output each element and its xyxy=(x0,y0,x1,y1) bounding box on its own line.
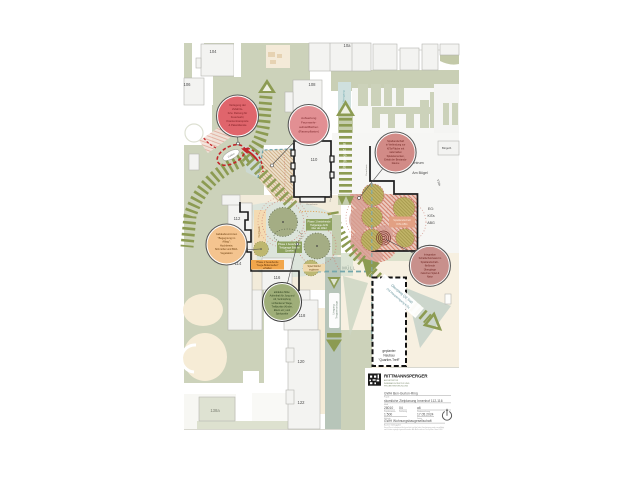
svg-text:in Verbindung zur: in Verbindung zur xyxy=(386,144,406,147)
svg-text:Natur: Natur xyxy=(427,276,433,279)
svg-text:räumliche Zielplanung Innenhof: räumliche Zielplanung Innenhof 112-116 xyxy=(384,399,443,403)
svg-text:116: 116 xyxy=(274,275,281,280)
svg-text:Treppenanlage: Treppenanlage xyxy=(335,300,339,318)
svg-text:Bauherr / Auftraggeber: Bauherr / Auftraggeber xyxy=(384,423,402,426)
svg-text:ergänzen: ergänzen xyxy=(309,268,320,271)
svg-text:vorhandener Wege,: vorhandener Wege, xyxy=(272,302,293,305)
svg-text:naturnahen: naturnahen xyxy=(389,151,402,154)
svg-text:ABG: ABG xyxy=(427,221,435,225)
svg-text:110: 110 xyxy=(311,157,318,162)
svg-text:EG:: EG: xyxy=(428,207,434,211)
svg-text:PROJEKTENTWICKLUNG: PROJEKTENTWICKLUNG xyxy=(384,385,408,387)
svg-text:MÜLL: MÜLL xyxy=(342,266,356,271)
svg-text:Krankentransporte: Krankentransporte xyxy=(226,119,249,123)
svg-text:28010: 28010 xyxy=(384,406,393,410)
svg-text:106: 106 xyxy=(184,82,192,87)
svg-text:bzw. Rettung für: bzw. Rettung für xyxy=(228,111,248,115)
svg-text:Feuerwehr,: Feuerwehr, xyxy=(231,115,245,119)
svg-text:erhalten: erhalten xyxy=(263,267,272,270)
svg-text:bäume: bäume xyxy=(392,162,400,165)
svg-text:Schallschutzwand in: Schallschutzwand in xyxy=(419,257,442,260)
svg-text:über als Wald: über als Wald xyxy=(311,227,327,230)
svg-text:(Rasenpflaster): (Rasenpflaster) xyxy=(298,130,319,134)
svg-text:Feuerwehr-: Feuerwehr- xyxy=(301,121,316,125)
svg-text:RITTMANNSPERGER: RITTMANNSPERGER xyxy=(384,374,428,379)
svg-text:Übergang QZ Ost: Übergang QZ Ost xyxy=(343,143,347,170)
svg-text:Raumkante: Raumkante xyxy=(365,164,368,176)
svg-text:Vegetation: Vegetation xyxy=(220,251,233,255)
svg-text:a6: a6 xyxy=(417,406,421,410)
svg-text:Verlegung der: Verlegung der xyxy=(229,103,246,107)
svg-text:Spielpunkte: Spielpunkte xyxy=(276,313,289,316)
svg-text:Aufwertung: Aufwertung xyxy=(301,116,317,120)
svg-text:Raumkante: Raumkante xyxy=(329,190,332,202)
svg-text:Alltag":: Alltag": xyxy=(222,240,230,244)
svg-text:Raumkante: Raumkante xyxy=(306,203,318,206)
svg-text:ARCHITEKTUR: ARCHITEKTUR xyxy=(384,379,399,382)
svg-text:138a: 138a xyxy=(210,408,220,413)
svg-text:Zeichnung: Zeichnung xyxy=(399,411,407,413)
svg-text:fließende: fließende xyxy=(425,265,436,268)
svg-text:Spiellandschaft: Spiellandschaft xyxy=(393,218,411,222)
svg-text:Treffpunkte (Kinder,: Treffpunkte (Kinder, xyxy=(272,305,293,308)
svg-text:118: 118 xyxy=(299,313,306,318)
svg-text:108: 108 xyxy=(309,82,317,87)
svg-text:KiTa-Fläche mit: KiTa-Fläche mit xyxy=(387,147,405,150)
svg-text:Eltern etc.) und: Eltern etc.) und xyxy=(274,309,291,312)
svg-text:Integration: Integration xyxy=(424,254,436,257)
svg-text:INNENARCHITEKTUR UND: INNENARCHITEKTUR UND xyxy=(384,382,410,385)
svg-text:122: 122 xyxy=(298,400,306,405)
svg-text:Spiellandschaft: Spiellandschaft xyxy=(387,140,404,143)
svg-text:112: 112 xyxy=(234,216,241,221)
svg-text:120: 120 xyxy=(298,359,306,364)
svg-text:zwischen Spiel &: zwischen Spiel & xyxy=(420,272,439,275)
svg-text:GWH Wohnungsbaugesellschaft: GWH Wohnungsbaugesellschaft xyxy=(384,419,432,423)
svg-text:"Begegnung im: "Begegnung im xyxy=(218,236,236,240)
svg-text:Gebäudevorzonen: Gebäudevorzonen xyxy=(216,232,238,236)
svg-text:17.05.2024: 17.05.2024 xyxy=(417,413,434,417)
svg-text:1:500: 1:500 xyxy=(384,413,392,417)
svg-text:10a: 10a xyxy=(344,43,352,48)
svg-text:Neubau: Neubau xyxy=(383,354,394,358)
svg-text:KiTa: KiTa xyxy=(428,214,435,218)
svg-text:Übergänge: Übergänge xyxy=(424,268,437,271)
svg-text:Zufahrts-: Zufahrts- xyxy=(232,107,243,111)
svg-text:Quartier: Quartier xyxy=(285,250,294,253)
svg-text:aufstellflächen: aufstellflächen xyxy=(299,125,319,129)
svg-text:Am Bügel: Am Bügel xyxy=(412,171,428,175)
svg-text:GWH Ben-Gurion-Ring: GWH Ben-Gurion-Ring xyxy=(384,391,418,395)
svg-text:Sitzmöbel und Blüh-: Sitzmöbel und Blüh- xyxy=(215,247,238,251)
svg-text:& Paketdienste: & Paketdienste xyxy=(228,123,247,127)
svg-text:attraktive Mitte:: attraktive Mitte: xyxy=(274,291,291,294)
svg-text:Spielelementen,: Spielelementen, xyxy=(387,155,405,158)
svg-text:KiTa ABG: KiTa ABG xyxy=(396,222,407,226)
svg-text:"Quartier-Treff": "Quartier-Treff" xyxy=(378,358,399,362)
svg-text:04: 04 xyxy=(399,406,403,410)
svg-text:Spiellandschaft -: Spiellandschaft - xyxy=(421,261,440,264)
svg-text:Erhalt der Bestands-: Erhalt der Bestands- xyxy=(384,159,407,162)
svg-text:Bürgerh.: Bürgerh. xyxy=(442,146,452,150)
svg-text:Alt, Verknüpfung: Alt, Verknüpfung xyxy=(273,298,291,301)
svg-text:104: 104 xyxy=(210,49,218,54)
svg-text:Hochbeete,: Hochbeete, xyxy=(220,243,234,247)
svg-text:Aufenthalt für Jung und: Aufenthalt für Jung und xyxy=(270,295,295,298)
svg-text:Übergang: Übergang xyxy=(342,90,346,104)
svg-text:geplanter: geplanter xyxy=(382,349,396,353)
